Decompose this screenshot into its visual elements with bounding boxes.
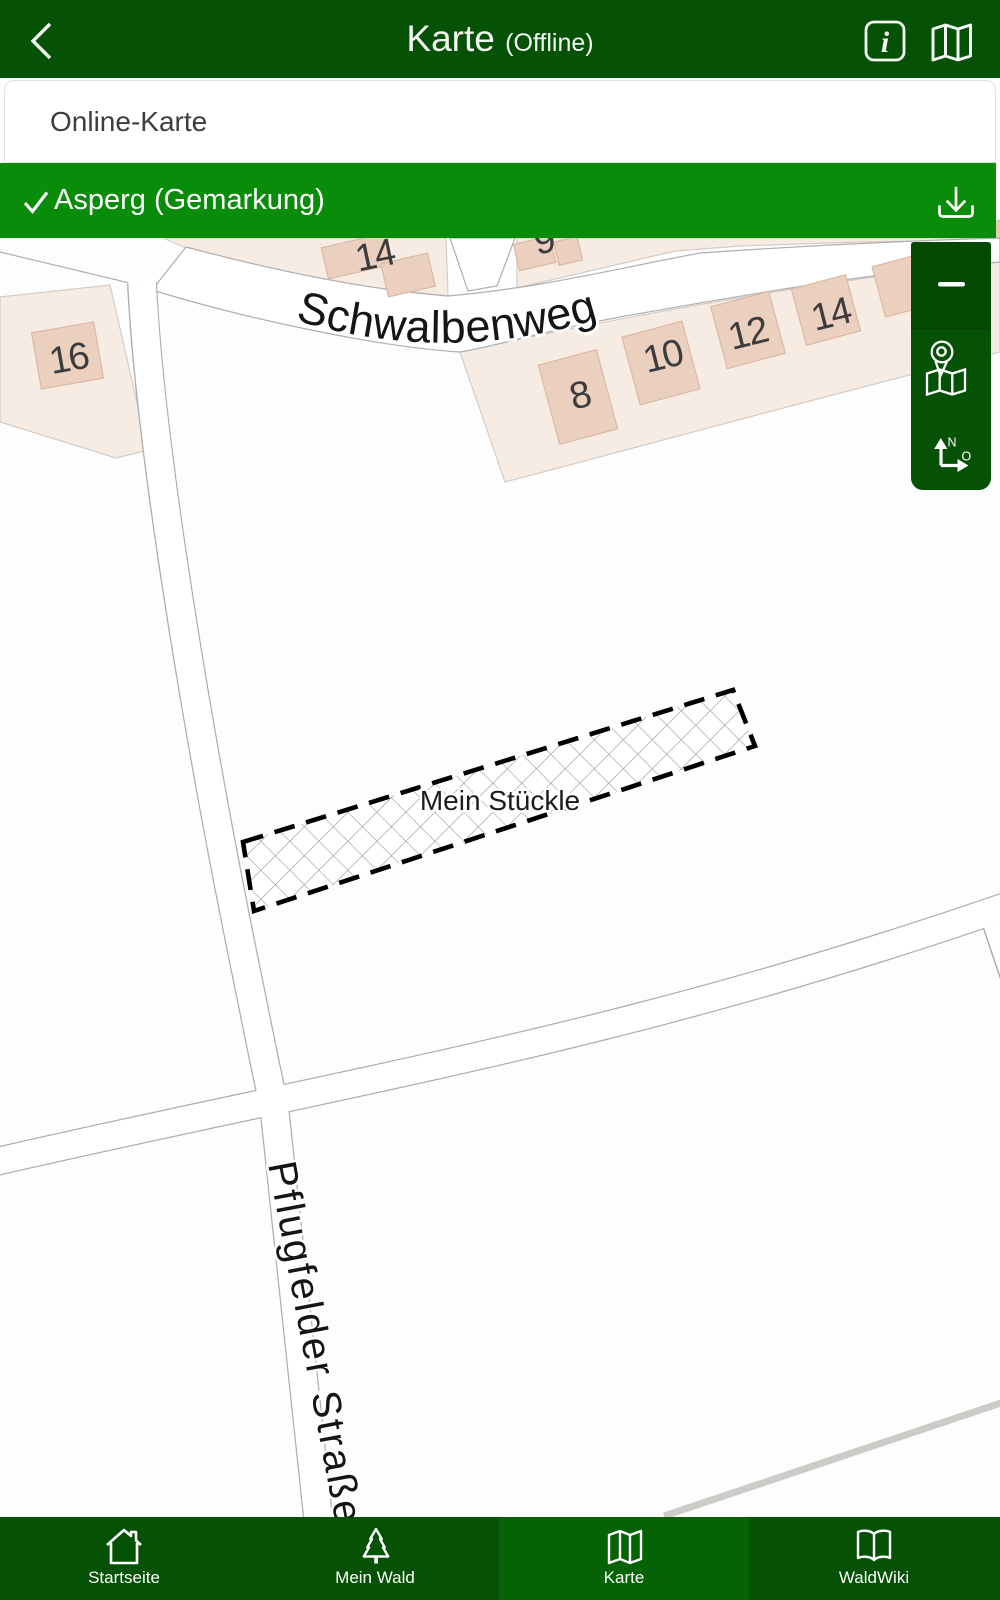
svg-text:N: N [948,436,957,450]
svg-text:Mein Stückle: Mein Stückle [420,785,580,816]
svg-text:O: O [962,450,972,464]
svg-text:i: i [881,26,890,59]
